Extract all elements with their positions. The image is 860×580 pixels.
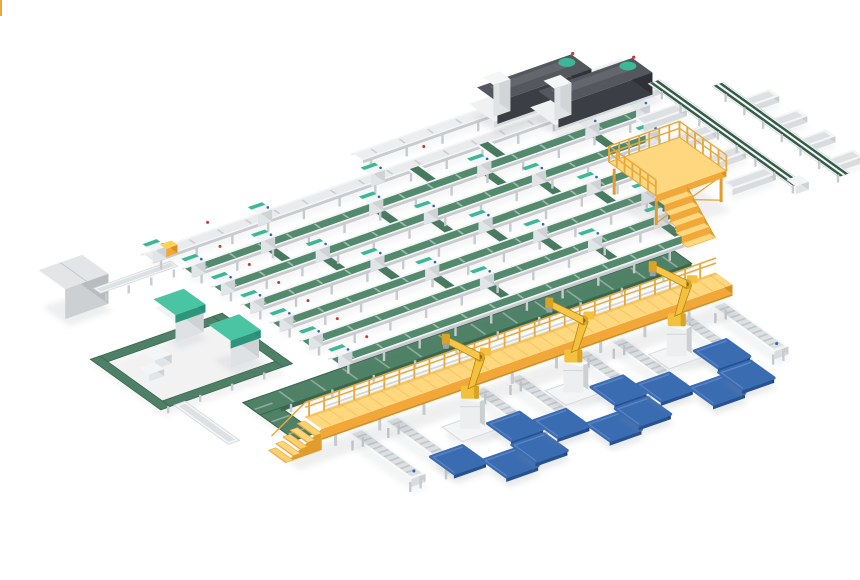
render-canvas — [0, 0, 860, 580]
sorting-line-scene — [0, 0, 860, 580]
